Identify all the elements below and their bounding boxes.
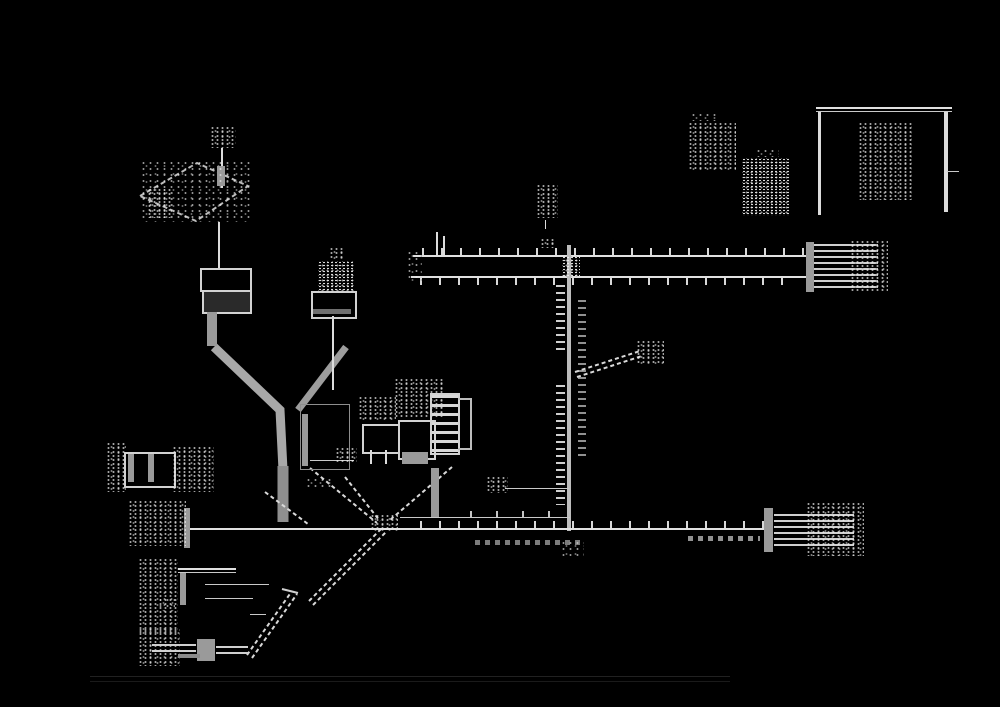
stacked-unit-bottom (202, 290, 252, 314)
mid-bracket-glyph-noise (536, 184, 558, 218)
frame-glyph-noise (858, 122, 912, 200)
frame-right-leg (944, 112, 948, 212)
stacked-unit-top (200, 268, 252, 292)
l-bracket-side-mark (157, 597, 175, 611)
callout-label-noise-plate (210, 126, 236, 148)
coil-bracket-base (313, 309, 351, 314)
second-line-ticks (470, 511, 570, 517)
coil-top-nut (329, 247, 345, 260)
relay-b-leg-left (370, 450, 372, 464)
trunk-ticks-left-2 (556, 385, 565, 505)
mid-junction-lead (505, 488, 569, 489)
unit-drop-wire (207, 312, 217, 346)
relay-box-a-wire (302, 414, 308, 466)
clamp-icon-b (742, 158, 790, 216)
clamp-b-label-noise (755, 148, 779, 157)
wiring-diagram-canvas (0, 0, 1000, 707)
relay-c-base (402, 452, 428, 464)
switch-bar-2 (148, 454, 154, 482)
trunk-ticks-left-1 (556, 285, 565, 355)
baseline-stub (178, 654, 200, 658)
coil-drop-line (332, 316, 334, 390)
bottom-left-label-column-noise (138, 558, 178, 634)
bus-stub-tick-2 (443, 236, 445, 255)
bus-small-label-noise (540, 238, 554, 248)
relay-box-b (362, 424, 400, 454)
fuse-ladder-bracket (458, 398, 472, 450)
switch-right-label-noise (172, 446, 214, 492)
l-bracket-shelf-2 (205, 598, 253, 599)
top-bus-line-1 (413, 255, 811, 257)
harness-y-right-arm (298, 347, 346, 410)
end-connector-body (764, 508, 773, 552)
end-connector-label-noise (806, 502, 864, 556)
top-bus-ticks-lower (420, 278, 796, 285)
l-bracket-top-2 (178, 572, 236, 573)
l-bracket-top-1 (178, 568, 236, 570)
bottom-second-line (400, 517, 570, 518)
fuse-drop-wire (431, 468, 439, 518)
coil-body (318, 261, 354, 293)
battery-block-label-noise (850, 240, 888, 292)
relay-b-top-noise (358, 396, 396, 420)
trunk-bus-junction-noise (562, 256, 580, 278)
frame-side-tick (947, 171, 959, 172)
mid-junction-label-noise (486, 476, 508, 493)
battery-block-post (806, 242, 814, 292)
mid-bracket-tick (545, 220, 546, 229)
frame-top-line-2 (816, 111, 952, 112)
bottom-harness-line (190, 528, 766, 530)
below-line-dashes-2 (688, 536, 760, 541)
l-bracket-dash (250, 614, 266, 615)
left-lower-connector-noise (128, 500, 186, 546)
l-bracket-vertical (180, 573, 186, 605)
fuse-ladder (430, 393, 460, 455)
bottom-connector-leads-right (216, 646, 248, 656)
top-bus-left-end-noise (406, 250, 422, 282)
harness-run-hook (282, 589, 298, 593)
coil-bracket-box (311, 291, 357, 319)
cluster-lower-part (305, 477, 331, 487)
trunk-ticks-right (578, 300, 586, 460)
switch-left-noise (106, 442, 126, 492)
bottom-line-ticks (420, 521, 764, 528)
bus-stub-tick-1 (436, 232, 438, 255)
ground-baseline-1 (90, 676, 730, 677)
harness-y-left-arm (214, 347, 283, 470)
l-bracket-shelf-1 (205, 584, 269, 585)
clamp-a-label-noise (690, 112, 720, 121)
branch-connector-noise (636, 340, 664, 364)
cluster-small-part (335, 447, 357, 463)
plate-side-label-noise (147, 188, 173, 218)
relay-b-leg-right (385, 450, 387, 464)
clamp-icon-a (688, 122, 736, 170)
plate-to-unit-lead (218, 222, 220, 270)
frame-top-line-1 (816, 107, 952, 109)
ground-baseline-2 (90, 681, 730, 682)
frame-left-leg (818, 112, 821, 215)
top-bus-ticks-upper (422, 248, 806, 255)
below-line-dashes-1 (475, 540, 585, 545)
switch-bar-1 (128, 454, 134, 482)
